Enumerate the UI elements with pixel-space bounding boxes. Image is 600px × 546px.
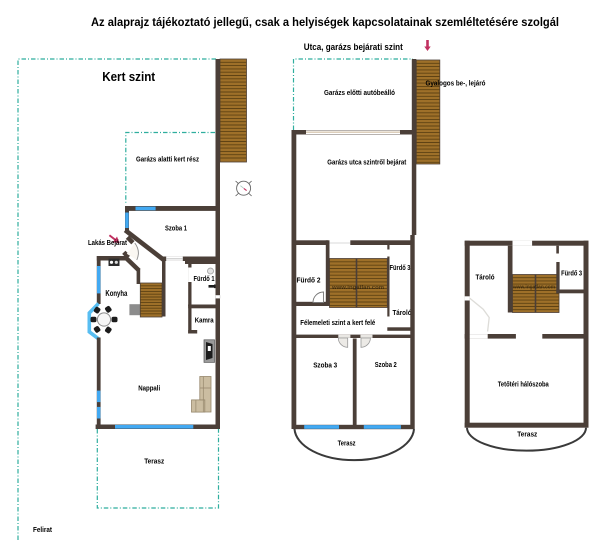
svg-text:Az alaprajz tájékoztató jelleg: Az alaprajz tájékoztató jellegű, csak a … (91, 15, 559, 29)
svg-text:Tároló: Tároló (476, 275, 495, 282)
svg-text:Fürdő 1: Fürdő 1 (194, 274, 215, 283)
svg-text:Félemeleti szint a kert felé: Félemeleti szint a kert felé (300, 318, 375, 327)
svg-text:Terasz: Terasz (144, 456, 164, 465)
svg-text:Kert szint: Kert szint (102, 69, 156, 84)
svg-text:Garázs alatti kert rész: Garázs alatti kert rész (136, 157, 199, 164)
svg-text:Konyha: Konyha (105, 289, 127, 298)
svg-text:Szoba 3: Szoba 3 (313, 361, 337, 370)
svg-text:www.ingatlan.com: www.ingatlan.com (331, 285, 385, 291)
svg-text:Felirat: Felirat (33, 527, 53, 534)
svg-text:Szoba 1: Szoba 1 (165, 224, 187, 233)
svg-text:Garázs előtti autóbeálló: Garázs előtti autóbeálló (324, 90, 395, 97)
svg-text:Garázs utca szintről bejárat: Garázs utca szintről bejárat (327, 160, 407, 167)
svg-text:www.ingatlan.com: www.ingatlan.com (512, 285, 555, 291)
svg-text:Fürdő 3: Fürdő 3 (390, 265, 411, 272)
svg-text:Tároló: Tároló (393, 310, 412, 317)
svg-text:Utca, garázs bejárati szint: Utca, garázs bejárati szint (304, 42, 403, 52)
svg-text:Fürdő 2: Fürdő 2 (297, 276, 321, 285)
svg-text:Tetőtéri hálószoba: Tetőtéri hálószoba (498, 382, 549, 389)
svg-text:Nappali: Nappali (138, 384, 160, 393)
svg-text:Terasz: Terasz (338, 439, 356, 448)
svg-text:Fürdő 3: Fürdő 3 (561, 271, 582, 278)
svg-text:Terasz: Terasz (517, 432, 537, 439)
svg-text:Kamra: Kamra (195, 315, 215, 324)
svg-text:Lakás Bejárat: Lakás Bejárat (88, 238, 127, 247)
svg-text:Gyalogos be-, lejáró: Gyalogos be-, lejáró (426, 81, 486, 88)
svg-text:Szoba 2: Szoba 2 (375, 360, 397, 369)
